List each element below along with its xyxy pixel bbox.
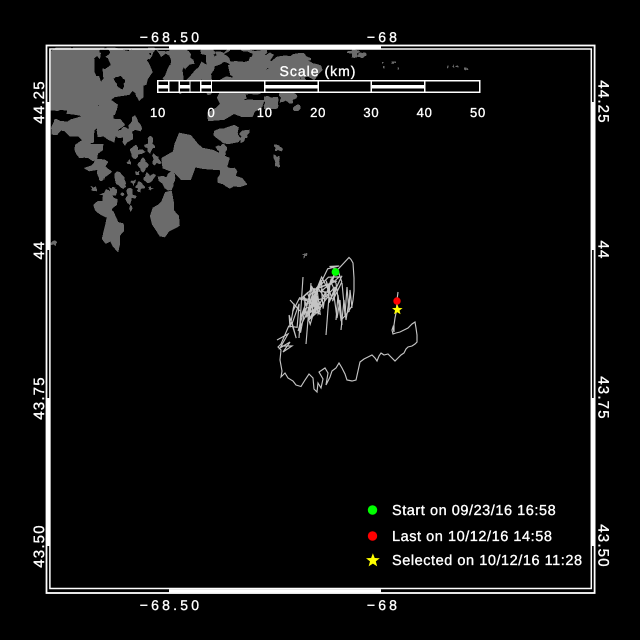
svg-text:Selected on 10/12/16 11:28: Selected on 10/12/16 11:28 [392, 553, 583, 569]
svg-text:0: 0 [207, 105, 215, 120]
svg-text:43.50: 43.50 [595, 524, 612, 568]
svg-text:−68: −68 [367, 597, 400, 613]
svg-text:50: 50 [470, 105, 486, 120]
svg-text:43.75: 43.75 [31, 376, 48, 420]
svg-text:43.75: 43.75 [595, 376, 612, 420]
svg-text:Start on 09/23/16 16:58: Start on 09/23/16 16:58 [392, 503, 556, 519]
svg-text:10: 10 [257, 105, 273, 120]
svg-text:−68: −68 [367, 29, 400, 45]
svg-text:Last on 10/12/16 14:58: Last on 10/12/16 14:58 [392, 529, 552, 545]
svg-text:44: 44 [595, 240, 612, 259]
svg-text:10: 10 [150, 105, 166, 120]
svg-text:Scale (km): Scale (km) [280, 63, 357, 79]
svg-text:30: 30 [363, 105, 379, 120]
svg-text:40: 40 [417, 105, 433, 120]
svg-text:20: 20 [310, 105, 326, 120]
svg-text:−68.50: −68.50 [140, 597, 202, 613]
svg-text:44.25: 44.25 [31, 80, 48, 124]
svg-text:44.25: 44.25 [595, 80, 612, 124]
svg-text:44: 44 [31, 240, 48, 259]
svg-text:−68.50: −68.50 [140, 29, 202, 45]
svg-text:43.50: 43.50 [31, 524, 48, 568]
